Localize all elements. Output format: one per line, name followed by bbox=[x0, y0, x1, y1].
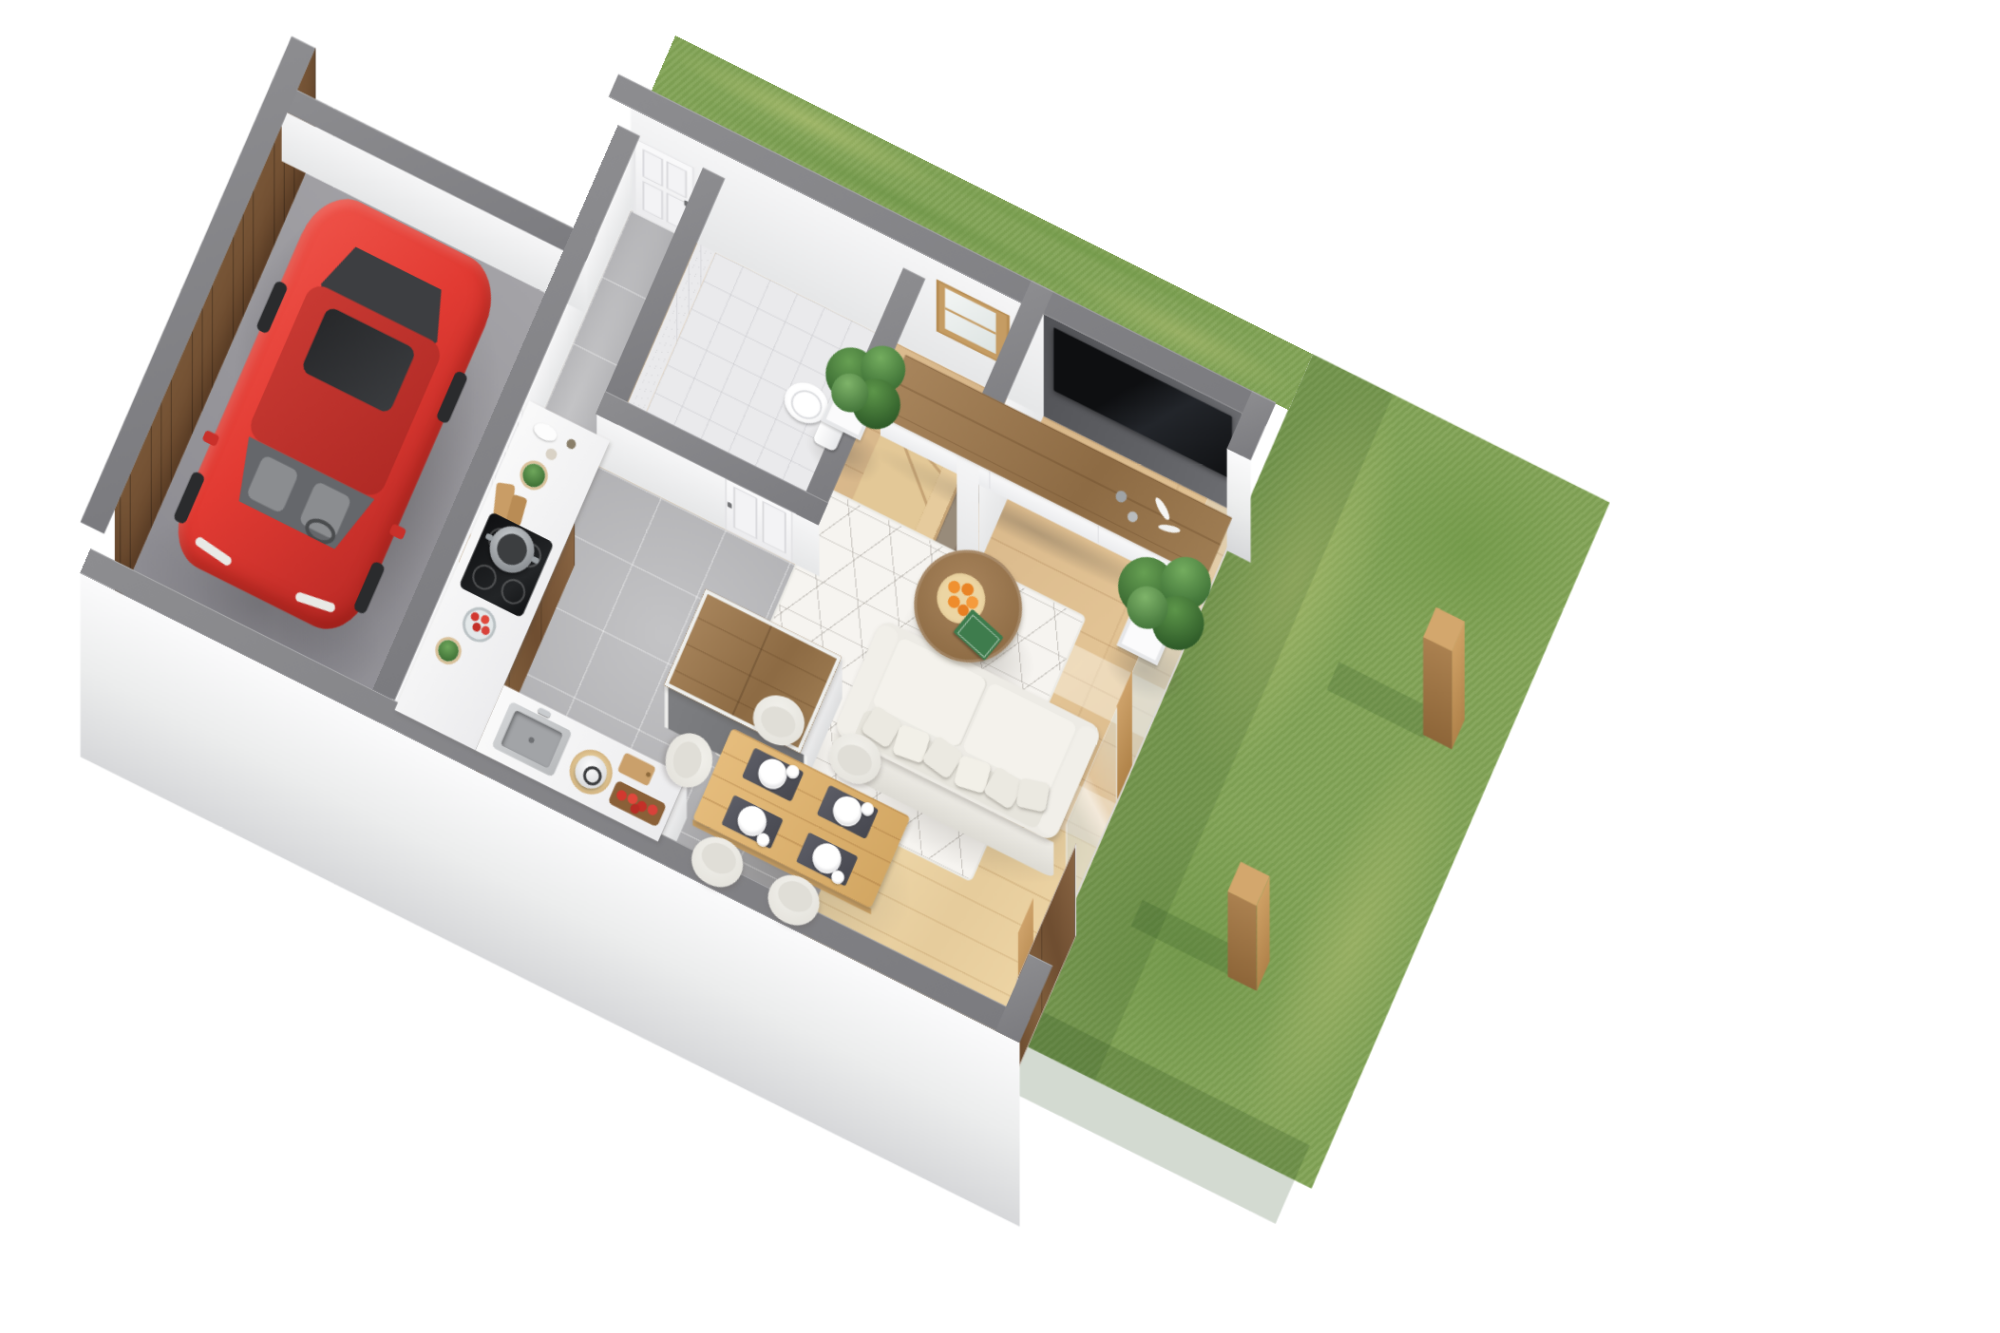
stair-stub-end bbox=[957, 451, 979, 565]
herb-pot bbox=[520, 460, 550, 491]
decor-plate bbox=[532, 419, 560, 444]
faucet bbox=[538, 707, 552, 718]
fence-post-side bbox=[1423, 636, 1452, 749]
decor-leaf bbox=[1153, 496, 1172, 522]
candle-holder bbox=[1114, 489, 1129, 505]
herb-pot bbox=[435, 636, 462, 665]
utensil-cup bbox=[544, 446, 559, 462]
fence-post-side bbox=[1228, 891, 1257, 991]
door-handle bbox=[727, 501, 731, 508]
floorplan-render bbox=[0, 0, 2000, 1333]
sofa-pillow bbox=[1016, 777, 1050, 812]
corner-pillar bbox=[1227, 448, 1251, 562]
apples-board bbox=[608, 780, 667, 827]
tomato-bowl bbox=[458, 601, 502, 648]
cutting-board bbox=[618, 752, 657, 787]
decor-leaf bbox=[1158, 523, 1181, 534]
car-seat bbox=[246, 454, 300, 514]
oil-bottle bbox=[566, 437, 578, 450]
